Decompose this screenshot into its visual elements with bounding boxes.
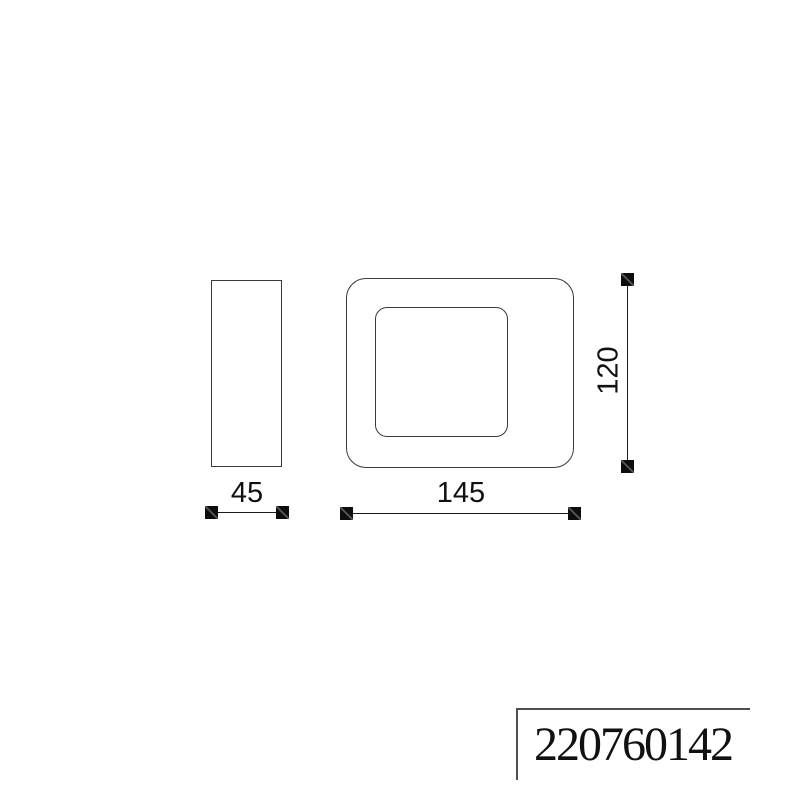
- dim-120-endpoint-marker-bottom: [621, 460, 634, 473]
- dim-145-label: 145: [431, 479, 491, 508]
- dim-120-line: [627, 280, 628, 467]
- technical-drawing-canvas: 45 145 120 220760142: [0, 0, 800, 800]
- dim-45-endpoint-marker-right: [276, 506, 289, 519]
- side-view-rectangle: [211, 280, 282, 467]
- dim-145-line: [347, 513, 575, 514]
- dim-145-endpoint-marker-right: [568, 507, 581, 520]
- dim-145-endpoint-marker-left: [340, 507, 353, 520]
- dim-45-label: 45: [217, 479, 277, 508]
- part-number: 220760142: [516, 712, 750, 776]
- front-view-inner-rounded-square: [375, 307, 508, 437]
- dim-45-line: [211, 512, 282, 513]
- title-block-top-border: [516, 708, 750, 710]
- dim-120-endpoint-marker-top: [621, 273, 634, 286]
- dim-120-label: 120: [595, 340, 624, 402]
